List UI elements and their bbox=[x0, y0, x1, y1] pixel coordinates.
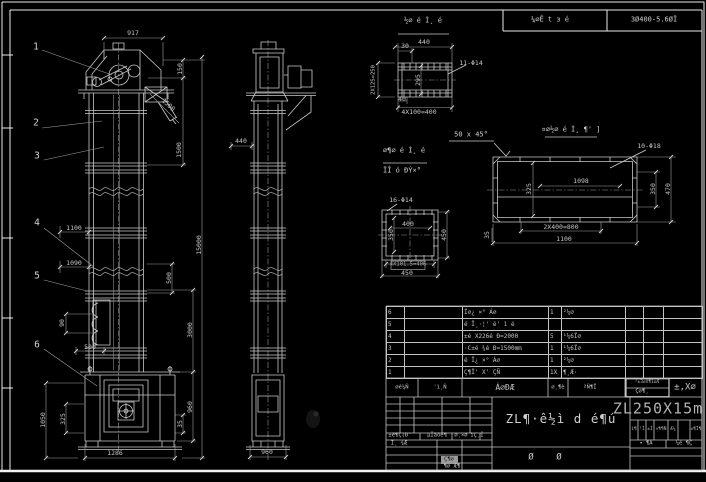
sig-label-3: ∅¸×∅ bbox=[454, 433, 467, 439]
balloon-6: 6 bbox=[34, 340, 40, 350]
detail-c-holes: 16-Φ14 bbox=[389, 197, 412, 204]
cad-drawing-canvas: ¼∅Ê t з é 3Ø400-5.6ØÏ 1 2 3 4 5 6 917 15… bbox=[0, 0, 706, 482]
mini-cell-1: ì¶ bbox=[631, 428, 636, 433]
title-block-bottom-left: ¶∅ Æ¶ bbox=[444, 464, 461, 470]
dim-500: 500 bbox=[84, 344, 96, 351]
sig-label-5: Ï¸ ¾Æ bbox=[391, 441, 408, 447]
sig-label-1: ±é¶Ç(Ð' bbox=[388, 433, 411, 439]
drawing-char-right: Ø bbox=[556, 454, 561, 463]
sheet-frame bbox=[2, 2, 704, 470]
mini-row-2: ¼é ¶Ç bbox=[676, 441, 693, 447]
dim-3000: 3000 bbox=[187, 322, 194, 338]
bom-row: 6Ï∅¿ ×° Á∅1²¼∅ bbox=[387, 307, 703, 319]
bom-header-code: 'ì¸Ñ bbox=[433, 385, 446, 391]
detail-a-title: ½∅ é Ì¸ é bbox=[404, 18, 442, 25]
detail-a-dim-pitch: 4X100=400 bbox=[401, 109, 436, 116]
mini-cell-6: ±¶Ï¶ bbox=[691, 428, 702, 433]
detail-a-dim-30: 30 bbox=[401, 43, 409, 50]
bom-header-qty: ∅¸¶è bbox=[551, 385, 564, 391]
bom-row: 3·C±é ¾é Ð=1500mm1¹¼6Ï∅ bbox=[387, 343, 703, 355]
detail-b-dim-pitch: 2X400=800 bbox=[543, 224, 578, 231]
dim-1100: 1100 bbox=[66, 225, 82, 232]
dim-15000: 15000 bbox=[196, 235, 203, 255]
drawing-title: ZL¶·ê½ì d é¶ú bbox=[506, 413, 617, 426]
detail-a-dim-440: 440 bbox=[418, 39, 430, 46]
detail-a-holes: 11-Φ14 bbox=[459, 60, 482, 67]
dim-1500: 1500 bbox=[176, 142, 183, 158]
detail-b-dim-1098: 1098 bbox=[573, 178, 589, 185]
bom-row: 5é Ï¸·¦' é' ì é bbox=[387, 319, 703, 331]
bom-row: 4±é X226é Ð=20005¹¼6Ï∅ bbox=[387, 331, 703, 343]
dim-500-pitch: 500 bbox=[166, 272, 173, 284]
balloon-5: 5 bbox=[34, 271, 40, 281]
mini-cell-3: ±Ì bbox=[647, 428, 652, 433]
detail-b-title: ¤∅½∅ é Ì¸ ¶' ] bbox=[541, 127, 600, 134]
bom-row: 1Ç¶Ï' X' ÇÑ1X¶¸Æ· bbox=[387, 367, 703, 379]
side-view bbox=[246, 42, 316, 450]
bom-header-weight-top: ²±3∅X¶1∅Æ bbox=[635, 381, 659, 386]
bom-row: 2é Ï¿ ×° Á∅1²¼∅ bbox=[387, 355, 703, 367]
drawing-linework bbox=[0, 0, 706, 482]
chamfer-note: 50 x 45° bbox=[454, 132, 488, 139]
drawing-char-left: Ø bbox=[528, 454, 533, 463]
detail-a-dim-295: 295 bbox=[415, 74, 422, 86]
detail-a-dim-40: 40 bbox=[398, 96, 406, 103]
detail-c-dim-pitch: 4X101.5=406 bbox=[390, 262, 426, 268]
detail-c-dim-450-bottom: 450 bbox=[401, 270, 413, 277]
dim-917: 917 bbox=[127, 30, 139, 37]
dim-35: 35 bbox=[177, 420, 184, 428]
caption-line2: ÏÎ ó ÐÝ×° bbox=[383, 168, 421, 175]
highlighted-cell-text: Ç¶∅ bbox=[444, 457, 454, 463]
detail-b-holes: 10-Φ18 bbox=[637, 143, 660, 150]
top-bar-project-label: ¼∅Ê t з é bbox=[531, 17, 569, 24]
detail-b-dim-325: 325 bbox=[526, 183, 533, 195]
balloon-4: 4 bbox=[34, 218, 40, 228]
bom-header-no: ∅é¼Ñ bbox=[395, 385, 408, 391]
dim-325: 325 bbox=[60, 413, 67, 425]
dim-960-side: 960 bbox=[261, 449, 273, 456]
bom-header-material: ªÑ¶Ï bbox=[583, 385, 596, 391]
dim-1090: 1090 bbox=[66, 260, 82, 267]
balloon-3: 3 bbox=[34, 151, 40, 161]
dimension-ticks bbox=[44, 36, 673, 460]
dim-150: 150 bbox=[177, 63, 184, 75]
bom-table: 6Ï∅¿ ×° Á∅1²¼∅ 5é Ï¸·¦' é' ì é 4±é X226é… bbox=[386, 306, 703, 379]
bom-header-name: Á∅ÐÆ bbox=[495, 384, 514, 392]
caption-line1: ∅¶∅ é Ì¸ é bbox=[383, 148, 425, 155]
balloon-2: 2 bbox=[33, 118, 39, 128]
dim-1286: 1286 bbox=[107, 450, 123, 457]
mini-row-1: • ¶Á bbox=[639, 441, 652, 447]
detail-c-dim-450-right: 450 bbox=[441, 229, 448, 241]
sig-label-2: µÏàòé¶ bbox=[427, 433, 447, 439]
detail-a-dim-left: 2X125=250 bbox=[371, 65, 377, 95]
dim-1050: 1050 bbox=[40, 412, 47, 428]
detail-b-dim-350: 350 bbox=[650, 183, 657, 195]
model-number: ZL250X15m bbox=[613, 402, 703, 417]
dim-440-side: 440 bbox=[235, 138, 247, 145]
detail-b bbox=[493, 137, 646, 222]
mini-cell-5: Æ¼ bbox=[670, 428, 675, 433]
break-lines bbox=[89, 188, 282, 276]
mini-cell-4: ×¶¶Ñ bbox=[656, 428, 667, 433]
detail-b-dim-470: 470 bbox=[665, 183, 672, 195]
dim-960-front: 960 bbox=[187, 401, 194, 413]
mini-cell-2: ¹Ì bbox=[639, 428, 644, 433]
smudge-dot bbox=[314, 412, 319, 417]
dimension-lines bbox=[42, 38, 676, 461]
detail-b-dim-35: 35 bbox=[484, 231, 491, 239]
detail-b-dim-1100: 1100 bbox=[556, 236, 572, 243]
sig-label-4: ìÇ¸Ï bbox=[470, 433, 483, 439]
detail-c-dim-350: 350 bbox=[388, 229, 395, 241]
dim-90: 90 bbox=[59, 319, 66, 327]
detail-c-dim-400: 400 bbox=[402, 221, 414, 228]
bom-header-remark: ±,X∅ bbox=[674, 384, 696, 393]
top-bar-spec-label: 3Ø400-5.6ØÏ bbox=[631, 17, 677, 24]
balloon-1: 1 bbox=[33, 42, 39, 52]
bom-header-weight-bottom: Ç∅¶¸ bbox=[635, 389, 648, 395]
